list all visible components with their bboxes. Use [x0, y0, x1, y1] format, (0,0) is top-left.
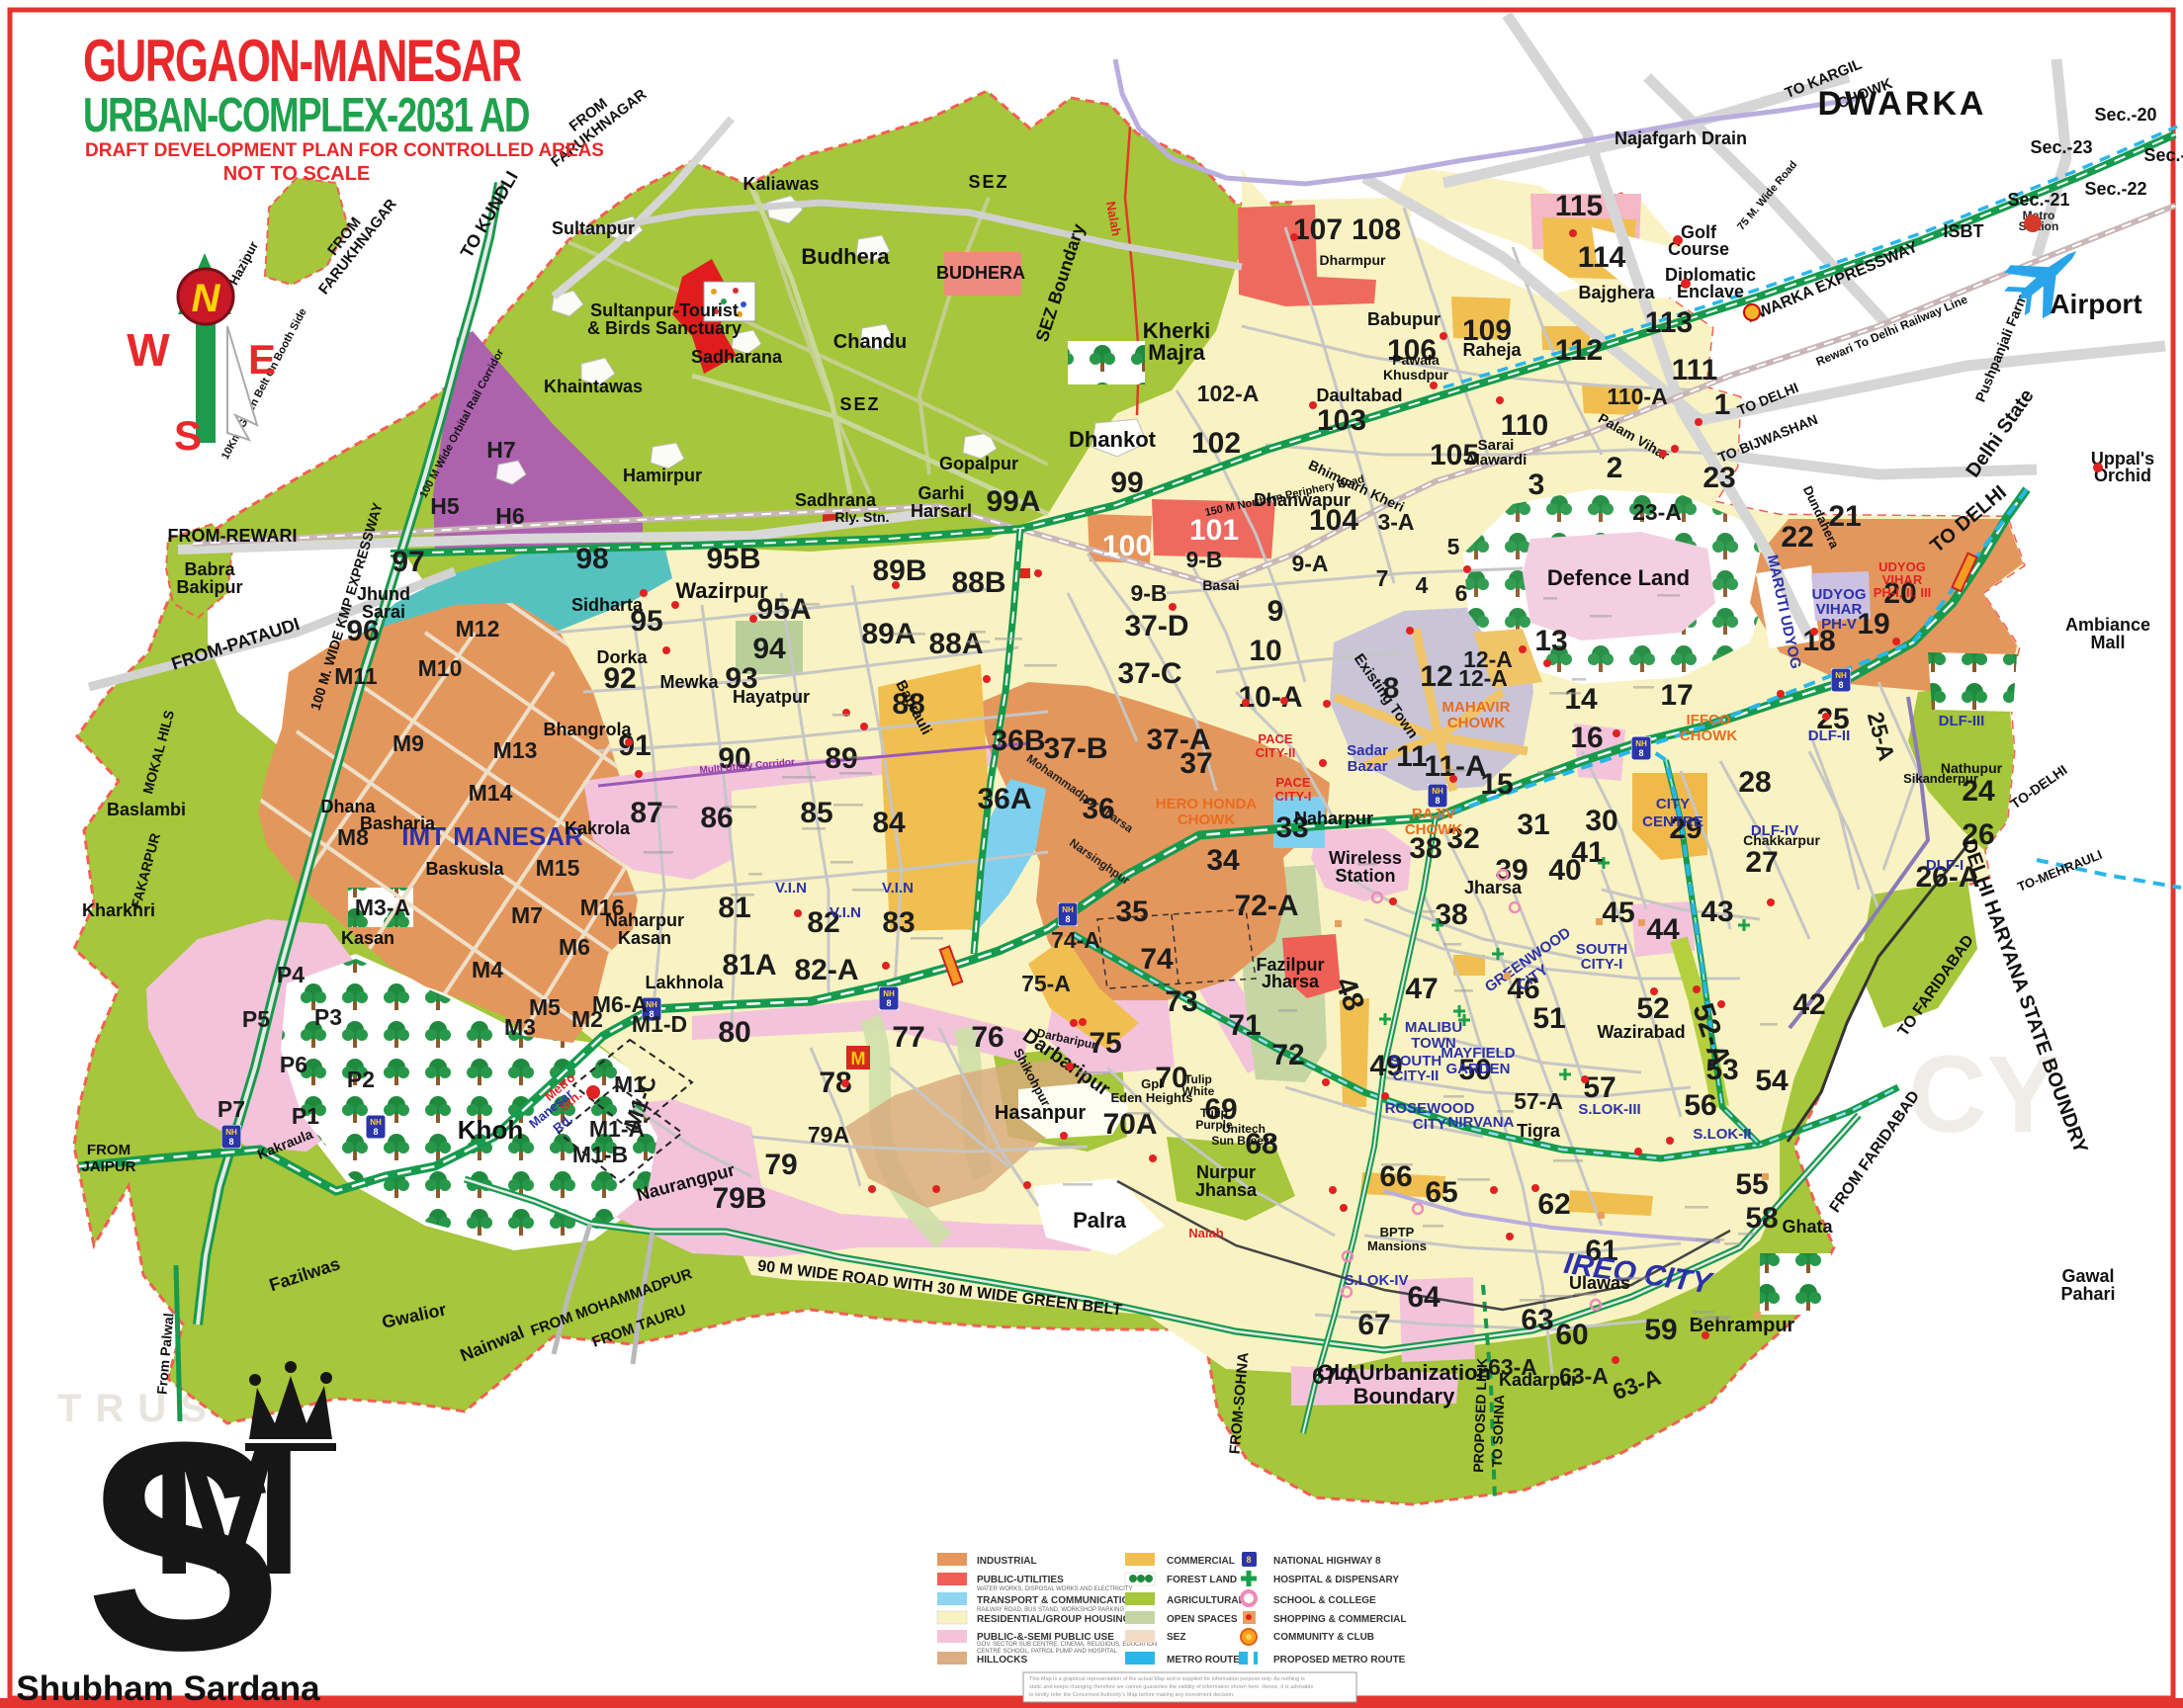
svg-text:76: 76 — [971, 1021, 1004, 1054]
svg-text:1: 1 — [1714, 388, 1731, 421]
svg-text:This Map is a graphical repres: This Map is a graphical representation o… — [1029, 1676, 1305, 1682]
svg-text:Sun Breeze: Sun Breeze — [1211, 1134, 1276, 1148]
svg-text:NOT TO SCALE: NOT TO SCALE — [223, 163, 371, 185]
svg-text:P2: P2 — [347, 1067, 375, 1092]
svg-text:85: 85 — [800, 797, 832, 829]
svg-text:83: 83 — [882, 906, 915, 939]
svg-text:6: 6 — [1455, 580, 1468, 606]
svg-text:115: 115 — [1555, 190, 1603, 222]
svg-text:110-A: 110-A — [1607, 384, 1667, 409]
svg-text:PACE: PACE — [1275, 775, 1310, 790]
svg-text:16: 16 — [1570, 722, 1603, 754]
svg-text:Sultanpur: Sultanpur — [552, 218, 635, 238]
svg-text:M15: M15 — [536, 855, 580, 881]
svg-text:N: N — [192, 277, 221, 320]
svg-text:60: 60 — [1555, 1319, 1588, 1351]
svg-text:45: 45 — [1602, 897, 1634, 929]
svg-text:P3: P3 — [314, 1004, 342, 1030]
svg-text:47: 47 — [1405, 973, 1438, 1005]
svg-text:M1-B: M1-B — [572, 1142, 628, 1167]
svg-text:12-A: 12-A — [1458, 665, 1508, 691]
svg-text:Babra: Babra — [184, 559, 235, 579]
svg-text:8: 8 — [1246, 1555, 1251, 1565]
svg-text:W: W — [127, 324, 170, 376]
svg-text:30: 30 — [1585, 805, 1617, 837]
svg-text:Naharpur: Naharpur — [1294, 809, 1373, 828]
svg-text:99: 99 — [1110, 467, 1143, 499]
svg-text:103: 103 — [1317, 404, 1366, 437]
svg-text:Kasan: Kasan — [341, 928, 394, 948]
svg-text:Daultabad: Daultabad — [1316, 385, 1402, 405]
svg-text:37-D: 37-D — [1124, 610, 1188, 642]
svg-text:14: 14 — [1564, 683, 1598, 716]
svg-text:CHOWK: CHOWK — [1447, 715, 1505, 731]
svg-text:PH-V: PH-V — [1821, 616, 1857, 633]
svg-text:9-B: 9-B — [1130, 580, 1167, 606]
svg-text:RESIDENTIAL/GROUP HOUSING: RESIDENTIAL/GROUP HOUSING — [977, 1614, 1131, 1625]
svg-text:H7: H7 — [486, 437, 515, 463]
svg-text:Bajghera: Bajghera — [1578, 283, 1655, 302]
svg-text:Bakipur: Bakipur — [176, 577, 242, 597]
svg-text:Hayatpur: Hayatpur — [733, 687, 810, 707]
svg-text:17: 17 — [1660, 679, 1693, 712]
svg-text:57: 57 — [1583, 1071, 1615, 1104]
svg-text:P4: P4 — [277, 962, 305, 987]
svg-text:RAJIV: RAJIV — [1412, 806, 1455, 822]
svg-text:2: 2 — [1607, 452, 1623, 484]
svg-text:44: 44 — [1646, 913, 1680, 946]
svg-text:Sarai: Sarai — [362, 602, 405, 622]
svg-text:Basai: Basai — [1202, 577, 1239, 593]
svg-text:Palra: Palra — [1073, 1208, 1127, 1233]
svg-text:Pahari: Pahari — [2060, 1284, 2115, 1304]
svg-text:Jhansa: Jhansa — [1195, 1180, 1258, 1200]
svg-text:113: 113 — [1645, 306, 1693, 339]
svg-text:MALIBU: MALIBU — [1405, 1019, 1462, 1036]
svg-text:S: S — [174, 412, 202, 459]
svg-text:DLF-II: DLF-II — [1808, 727, 1851, 744]
svg-text:4: 4 — [1416, 572, 1429, 598]
svg-text:28: 28 — [1738, 766, 1771, 799]
svg-text:Mewka: Mewka — [659, 672, 719, 692]
svg-text:FROM-REWARI: FROM-REWARI — [168, 526, 298, 546]
svg-text:Wazirpur: Wazirpur — [675, 578, 768, 603]
svg-text:M3-A: M3-A — [355, 895, 410, 920]
svg-text:35: 35 — [1115, 896, 1148, 928]
svg-text:3: 3 — [1528, 469, 1545, 501]
svg-text:Jharsa: Jharsa — [1262, 972, 1320, 991]
svg-text:23-A: 23-A — [1632, 499, 1682, 525]
svg-text:3-A: 3-A — [1377, 509, 1414, 535]
svg-text:Budhera: Budhera — [801, 244, 890, 269]
svg-text:7: 7 — [1376, 565, 1389, 591]
svg-text:Old Urbanization: Old Urbanization — [1317, 1360, 1491, 1385]
svg-text:Station: Station — [1336, 866, 1396, 886]
svg-text:SEZ: SEZ — [1167, 1632, 1185, 1643]
svg-text:Sec.-22: Sec.-22 — [2084, 179, 2146, 199]
svg-text:DLF-I: DLF-I — [1926, 857, 1964, 874]
svg-text:72-A: 72-A — [1234, 890, 1298, 922]
svg-text:AGRICULTURAL: AGRICULTURAL — [1167, 1595, 1245, 1606]
svg-text:P5: P5 — [242, 1006, 270, 1032]
svg-text:31: 31 — [1517, 809, 1549, 841]
svg-text:Chakkarpur: Chakkarpur — [1743, 832, 1820, 848]
svg-text:IFFCO: IFFCO — [1687, 712, 1731, 728]
svg-text:Mall: Mall — [2090, 633, 2125, 652]
svg-text:Sidharta: Sidharta — [571, 595, 644, 615]
svg-text:NIRVANA: NIRVANA — [1448, 1114, 1515, 1131]
svg-text:97: 97 — [392, 546, 424, 578]
svg-text:Khoh: Khoh — [458, 1115, 523, 1145]
svg-text:CITY-II: CITY-II — [1393, 1067, 1440, 1084]
svg-text:58: 58 — [1745, 1202, 1778, 1235]
svg-text:Najafgarh Drain: Najafgarh Drain — [1615, 128, 1747, 148]
svg-text:98: 98 — [575, 543, 608, 575]
svg-text:Lakhnola: Lakhnola — [645, 973, 724, 992]
svg-text:52: 52 — [1636, 992, 1669, 1025]
svg-text:100: 100 — [1102, 530, 1152, 562]
svg-text:54: 54 — [1755, 1065, 1789, 1097]
svg-text:79A: 79A — [808, 1122, 849, 1148]
svg-text:27: 27 — [1745, 846, 1778, 879]
svg-text:57-A: 57-A — [1514, 1088, 1563, 1114]
svg-text:CITY-I: CITY-I — [1581, 956, 1623, 973]
svg-text:Sadharana: Sadharana — [691, 347, 783, 367]
svg-text:SEZ: SEZ — [839, 394, 880, 414]
svg-text:82-A: 82-A — [794, 954, 858, 986]
svg-text:102: 102 — [1191, 427, 1241, 460]
svg-text:GURGAON-MANESAR: GURGAON-MANESAR — [83, 28, 521, 94]
svg-text:Shubham Sardana: Shubham Sardana — [16, 1669, 320, 1708]
svg-text:Boundary: Boundary — [1353, 1384, 1455, 1409]
svg-text:Hamirpur: Hamirpur — [623, 466, 702, 485]
svg-text:HERO HONDA: HERO HONDA — [1156, 796, 1258, 812]
svg-text:Tigra: Tigra — [1517, 1121, 1561, 1141]
svg-text:77: 77 — [892, 1021, 924, 1054]
svg-text:URBAN-COMPLEX-2031 AD: URBAN-COMPLEX-2031 AD — [83, 89, 529, 142]
svg-text:81: 81 — [718, 892, 750, 924]
svg-text:Khaintawas: Khaintawas — [544, 377, 643, 396]
svg-text:M13: M13 — [493, 737, 538, 763]
svg-text:PACE: PACE — [1258, 731, 1292, 746]
svg-text:Sec.-20: Sec.-20 — [2094, 105, 2156, 125]
svg-text:M11: M11 — [334, 663, 378, 689]
svg-text:SEZ: SEZ — [968, 172, 1008, 192]
svg-text:Kasan: Kasan — [618, 928, 671, 948]
svg-text:72: 72 — [1271, 1039, 1304, 1071]
svg-text:95B: 95B — [706, 543, 760, 575]
svg-text:Babupur: Babupur — [1367, 309, 1441, 329]
svg-text:87: 87 — [630, 797, 662, 829]
svg-text:HILLOCKS: HILLOCKS — [977, 1655, 1027, 1665]
svg-text:P6: P6 — [280, 1052, 307, 1077]
svg-text:E: E — [248, 336, 276, 383]
svg-text:Ulawas: Ulawas — [1569, 1273, 1630, 1293]
svg-text:MAYFIELD: MAYFIELD — [1441, 1045, 1515, 1062]
svg-text:M: M — [851, 1049, 866, 1068]
svg-text:10: 10 — [1249, 635, 1281, 667]
svg-text:Garhi: Garhi — [917, 483, 964, 503]
svg-text:Kakrola: Kakrola — [565, 818, 631, 838]
svg-text:102-A: 102-A — [1197, 381, 1260, 406]
svg-text:Ambiance: Ambiance — [2065, 615, 2150, 635]
svg-text:S.LOK-II: S.LOK-II — [1693, 1126, 1751, 1143]
svg-text:CITY: CITY — [1413, 1116, 1446, 1133]
svg-text:& Birds Sanctuary: & Birds Sanctuary — [587, 318, 742, 338]
svg-text:MAHAVIR: MAHAVIR — [1442, 699, 1511, 716]
svg-text:TO SOHNA: TO SOHNA — [1489, 1395, 1508, 1468]
svg-text:75-A: 75-A — [1021, 971, 1071, 996]
svg-text:to kindly refer the Concerned: to kindly refer the Concerned Authority'… — [1029, 1692, 1235, 1698]
svg-text:111: 111 — [1672, 354, 1718, 386]
svg-text:FOREST LAND: FOREST LAND — [1167, 1575, 1237, 1585]
svg-text:CITY-I: CITY-I — [1275, 789, 1312, 804]
svg-text:M4: M4 — [472, 957, 503, 982]
svg-text:Chandu: Chandu — [833, 331, 907, 353]
svg-text:73: 73 — [1165, 985, 1197, 1018]
svg-text:M7: M7 — [511, 902, 543, 928]
svg-text:64: 64 — [1407, 1281, 1441, 1314]
svg-text:V.I.N: V.I.N — [830, 904, 861, 921]
svg-text:Majra: Majra — [1148, 340, 1205, 365]
svg-text:NATIONAL HIGHWAY 8: NATIONAL HIGHWAY 8 — [1273, 1556, 1381, 1567]
svg-text:Gawal: Gawal — [2061, 1266, 2114, 1286]
svg-text:37: 37 — [1179, 747, 1212, 780]
svg-text:COMMUNITY & CLUB: COMMUNITY & CLUB — [1273, 1632, 1374, 1643]
svg-text:13: 13 — [1534, 625, 1567, 657]
svg-text:M10: M10 — [418, 655, 463, 681]
svg-text:51: 51 — [1532, 1002, 1565, 1035]
svg-text:Kadarpur: Kadarpur — [1499, 1370, 1578, 1390]
svg-text:62: 62 — [1537, 1188, 1570, 1221]
svg-text:107: 107 — [1293, 213, 1343, 246]
svg-text:M: M — [150, 1409, 303, 1613]
svg-text:BPTP: BPTP — [1380, 1225, 1415, 1239]
svg-text:SHOPPING & COMMERCIAL: SHOPPING & COMMERCIAL — [1273, 1614, 1406, 1625]
svg-text:COMMERCIAL: COMMERCIAL — [1167, 1556, 1235, 1567]
svg-text:Defence Land: Defence Land — [1547, 565, 1690, 590]
svg-text:56: 56 — [1684, 1089, 1716, 1122]
svg-text:Basharia: Basharia — [360, 813, 436, 833]
svg-text:Sec.-21: Sec.-21 — [2007, 190, 2069, 210]
svg-text:M14: M14 — [469, 780, 513, 806]
svg-text:DWARKA: DWARKA — [1818, 85, 1987, 123]
svg-text:CENTRE: CENTRE — [1642, 813, 1703, 830]
svg-text:M3: M3 — [504, 1014, 536, 1040]
svg-text:89B: 89B — [872, 555, 926, 587]
svg-text:SCHOOL & COLLEGE: SCHOOL & COLLEGE — [1273, 1595, 1376, 1606]
svg-text:23: 23 — [1703, 462, 1735, 494]
svg-text:S.LOK-IV: S.LOK-IV — [1344, 1272, 1408, 1289]
svg-text:9-B: 9-B — [1185, 547, 1222, 572]
svg-text:TRANSPORT & COMMUNICATION: TRANSPORT & COMMUNICATION — [977, 1595, 1136, 1606]
svg-text:Baslambi: Baslambi — [107, 800, 186, 819]
svg-text:88B: 88B — [951, 566, 1005, 599]
svg-text:74: 74 — [1140, 943, 1174, 976]
svg-text:RAILWAY ROAD, BUS STAND, WORKS: RAILWAY ROAD, BUS STAND, WORKSHOP PARKIN… — [977, 1607, 1124, 1613]
svg-text:CENTRE SCHOOL, PATROL PUMP AND: CENTRE SCHOOL, PATROL PUMP AND HOSPITAL — [977, 1649, 1117, 1655]
svg-text:81A: 81A — [722, 949, 776, 982]
svg-text:FROM: FROM — [87, 1142, 131, 1158]
svg-text:34: 34 — [1206, 844, 1240, 877]
svg-text:Dorka: Dorka — [596, 647, 648, 667]
svg-text:Gpl: Gpl — [1141, 1076, 1163, 1091]
svg-text:WATER WORKS, DISPOSAL WORKS AN: WATER WORKS, DISPOSAL WORKS AND ELECTRIC… — [977, 1586, 1132, 1592]
svg-text:42: 42 — [1792, 988, 1825, 1021]
svg-text:JAIPUR: JAIPUR — [81, 1158, 135, 1175]
svg-text:ISBT: ISBT — [1943, 221, 1983, 241]
svg-text:65: 65 — [1425, 1176, 1457, 1209]
svg-text:Alawardi: Alawardi — [1465, 452, 1528, 469]
svg-text:74-A: 74-A — [1051, 927, 1100, 953]
svg-text:Airport: Airport — [2050, 289, 2141, 319]
svg-text:M1-D: M1-D — [632, 1011, 687, 1037]
svg-text:37-C: 37-C — [1117, 657, 1181, 690]
svg-text:43: 43 — [1701, 896, 1733, 928]
svg-text:Sultanpur-Tourist: Sultanpur-Tourist — [590, 300, 739, 320]
svg-text:M6: M6 — [559, 934, 590, 960]
svg-text:22: 22 — [1781, 521, 1813, 554]
svg-text:63: 63 — [1521, 1304, 1553, 1336]
svg-text:Bazar: Bazar — [1348, 758, 1388, 775]
svg-text:12: 12 — [1420, 660, 1452, 693]
svg-text:Rly. Stn.: Rly. Stn. — [835, 509, 890, 525]
svg-text:White: White — [1182, 1084, 1215, 1098]
svg-text:10-A: 10-A — [1238, 681, 1302, 714]
svg-text:Jharsa: Jharsa — [1464, 878, 1523, 897]
svg-text:M12: M12 — [456, 616, 500, 641]
svg-text:67: 67 — [1357, 1309, 1390, 1341]
svg-text:DLF-III: DLF-III — [1939, 713, 1985, 729]
svg-text:Nurpur: Nurpur — [1196, 1162, 1256, 1182]
svg-text:Harsarl: Harsarl — [911, 501, 972, 521]
svg-text:79B: 79B — [712, 1182, 766, 1215]
svg-text:CHOWK: CHOWK — [1405, 821, 1462, 838]
svg-text:CHOWK: CHOWK — [1178, 811, 1235, 828]
svg-text:36B: 36B — [991, 725, 1045, 757]
svg-text:Pawala: Pawala — [1392, 352, 1440, 368]
svg-text:M9: M9 — [393, 730, 424, 756]
svg-text:112: 112 — [1555, 334, 1603, 367]
svg-text:99A: 99A — [986, 485, 1040, 518]
svg-text:Bhangrola: Bhangrola — [543, 720, 632, 739]
svg-text:101: 101 — [1189, 514, 1239, 547]
svg-text:Dharmpur: Dharmpur — [1320, 252, 1386, 268]
svg-text:11: 11 — [1396, 740, 1428, 773]
svg-text:Khusdpur: Khusdpur — [1383, 367, 1449, 383]
svg-text:P1: P1 — [292, 1103, 319, 1129]
svg-text:H5: H5 — [430, 493, 460, 519]
svg-text:94: 94 — [752, 633, 786, 665]
svg-text:P7: P7 — [218, 1096, 245, 1122]
svg-text:Sec.-23: Sec.-23 — [2030, 137, 2092, 157]
svg-text:DRAFT DEVELOPMENT PLAN FOR CON: DRAFT DEVELOPMENT PLAN FOR CONTROLLED AR… — [85, 140, 604, 161]
svg-text:59: 59 — [1644, 1314, 1677, 1346]
svg-text:36A: 36A — [977, 783, 1031, 815]
svg-text:9-A: 9-A — [1291, 551, 1328, 576]
svg-text:INDUSTRIAL: INDUSTRIAL — [977, 1556, 1037, 1567]
svg-text:H6: H6 — [495, 503, 524, 529]
svg-text:55: 55 — [1735, 1168, 1768, 1201]
svg-text:static and keeps changing ther: static and keeps changing therefore we c… — [1029, 1684, 1313, 1690]
svg-text:M2: M2 — [571, 1006, 603, 1032]
svg-text:Gopalpur: Gopalpur — [939, 454, 1018, 473]
svg-text:Eden Heights: Eden Heights — [1110, 1090, 1192, 1105]
svg-text:37-B: 37-B — [1043, 732, 1107, 765]
svg-text:114: 114 — [1578, 241, 1626, 274]
svg-text:OPEN SPACES: OPEN SPACES — [1167, 1614, 1238, 1625]
svg-text:Baskusla: Baskusla — [425, 859, 504, 879]
svg-text:PUBLIC-UTILITIES: PUBLIC-UTILITIES — [977, 1575, 1064, 1585]
svg-text:Sadar: Sadar — [1347, 742, 1388, 759]
svg-text:Sadhrana: Sadhrana — [795, 490, 877, 510]
svg-text:HOSPITAL & DISPENSARY: HOSPITAL & DISPENSARY — [1273, 1575, 1399, 1585]
svg-text:Dhankot: Dhankot — [1069, 427, 1157, 452]
svg-text:GARDEN: GARDEN — [1445, 1061, 1510, 1077]
svg-text:Sikanderpur: Sikanderpur — [1903, 771, 1978, 786]
svg-text:79: 79 — [764, 1149, 797, 1181]
svg-text:CITY-II: CITY-II — [1256, 745, 1295, 760]
svg-text:Nalah: Nalah — [1188, 1226, 1223, 1240]
svg-text:5: 5 — [1447, 534, 1460, 559]
svg-text:Raheja: Raheja — [1462, 340, 1522, 360]
svg-text:Mansions: Mansions — [1367, 1238, 1427, 1253]
svg-text:108: 108 — [1352, 213, 1401, 246]
svg-text:80: 80 — [718, 1016, 750, 1049]
svg-text:METRO ROUTE: METRO ROUTE — [1167, 1655, 1240, 1665]
svg-text:S.LOK-III: S.LOK-III — [1578, 1101, 1640, 1118]
svg-text:Jhund: Jhund — [357, 584, 410, 604]
svg-text:Sec.-8: Sec.-8 — [2143, 145, 2183, 165]
svg-text:CITY: CITY — [1656, 796, 1690, 812]
svg-text:36: 36 — [1082, 793, 1114, 825]
svg-text:BUDHERA: BUDHERA — [936, 263, 1025, 283]
svg-text:Kaliawas: Kaliawas — [742, 174, 819, 194]
svg-text:84: 84 — [872, 807, 906, 839]
svg-text:9: 9 — [1267, 595, 1284, 628]
svg-text:Wazirabad: Wazirabad — [1597, 1022, 1685, 1042]
svg-text:PROPOSED METRO ROUTE: PROPOSED METRO ROUTE — [1273, 1655, 1406, 1665]
svg-text:V.I.N: V.I.N — [775, 880, 807, 897]
svg-text:CHOWK: CHOWK — [1680, 727, 1737, 744]
svg-text:PH-I, II, III: PH-I, II, III — [1874, 585, 1932, 600]
svg-text:Ghata: Ghata — [1782, 1217, 1833, 1237]
svg-text:71: 71 — [1228, 1009, 1261, 1042]
svg-text:V.I.N: V.I.N — [882, 880, 914, 897]
svg-text:Naharpur: Naharpur — [605, 910, 684, 930]
